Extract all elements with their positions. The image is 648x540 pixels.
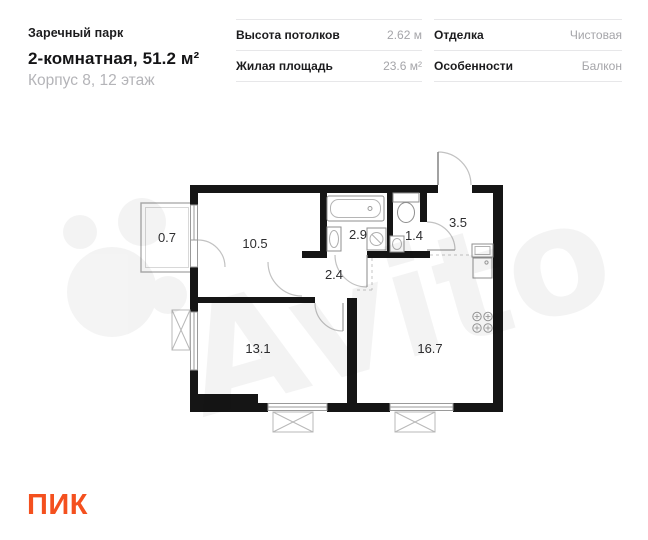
washing-machine-icon [367, 228, 386, 250]
balcony-door-frame [191, 240, 198, 267]
spec-column-right: Отделка Чистовая Особенности Балкон [434, 19, 622, 82]
spec-column-left: Высота потолков 2.62 м Жилая площадь 23.… [236, 19, 422, 82]
spec-value: Чистовая [570, 28, 622, 42]
wall [347, 298, 357, 403]
room-area-label-wc: 1.4 [405, 228, 423, 243]
spec-value: Балкон [582, 59, 622, 73]
spec-label: Жилая площадь [236, 59, 333, 73]
wall [190, 267, 198, 312]
spec-label: Особенности [434, 59, 513, 73]
door-arc-balcony [198, 240, 225, 267]
room-area-label-kitchen-living: 16.7 [417, 341, 442, 356]
zone-boundaries [357, 255, 472, 290]
stove-icon [473, 312, 492, 332]
exterior-units [172, 310, 435, 432]
wall [420, 193, 427, 222]
toilet-icon [393, 193, 419, 223]
ac-unit-icon [172, 310, 190, 350]
spec-row-features: Особенности Балкон [434, 50, 622, 82]
wall [190, 403, 268, 412]
pik-logo: ПИК [27, 489, 88, 522]
door-arc-bedroom [315, 303, 343, 331]
wall [190, 185, 438, 193]
spec-row-finishing: Отделка Чистовая [434, 19, 622, 50]
room-area-label-corridor: 2.4 [325, 267, 343, 282]
floor-plan: 0.7 10.5 2.9 1.4 3.5 2.4 13.1 16.7 [138, 140, 510, 440]
sink-icon [327, 227, 341, 251]
room-area-label-hallway: 3.5 [449, 215, 467, 230]
room-area-label-balcony: 0.7 [158, 230, 176, 245]
spec-row-living-area: Жилая площадь 23.6 м² [236, 50, 422, 82]
spec-label: Высота потолков [236, 28, 340, 42]
project-name: Заречный парк [28, 26, 199, 40]
floor-plan-svg: 0.7 10.5 2.9 1.4 3.5 2.4 13.1 16.7 [138, 140, 510, 440]
ac-unit-icon [395, 412, 435, 432]
door-arc-entrance [438, 152, 471, 185]
room-labels: 0.7 10.5 2.9 1.4 3.5 2.4 13.1 16.7 [158, 215, 467, 356]
wall [198, 394, 258, 403]
wall [190, 185, 198, 205]
bathtub-icon [327, 196, 384, 221]
spec-value: 2.62 м [387, 28, 422, 42]
spec-label: Отделка [434, 28, 484, 42]
room-area-label-bathroom: 2.9 [349, 227, 367, 242]
wall [327, 403, 390, 412]
spec-value: 23.6 м² [383, 59, 422, 73]
door-arc-living-room [268, 262, 302, 296]
wall [198, 297, 315, 303]
ac-unit-icon [273, 412, 313, 432]
wall [453, 403, 503, 412]
wall [302, 251, 327, 258]
listing-header: Заречный парк 2-комнатная, 51.2 м² Корпу… [28, 26, 199, 90]
spec-row-ceiling-height: Высота потолков 2.62 м [236, 19, 422, 50]
room-area-label-living-room: 10.5 [242, 236, 267, 251]
apartment-subtitle: Корпус 8, 12 этаж [28, 72, 199, 90]
wall [320, 193, 327, 253]
room-area-label-bedroom: 13.1 [245, 341, 270, 356]
apartment-title: 2-комнатная, 51.2 м² [28, 49, 199, 69]
wc-sink-icon [390, 236, 404, 252]
kitchen-sink-icon [472, 244, 493, 278]
wall [493, 185, 503, 412]
